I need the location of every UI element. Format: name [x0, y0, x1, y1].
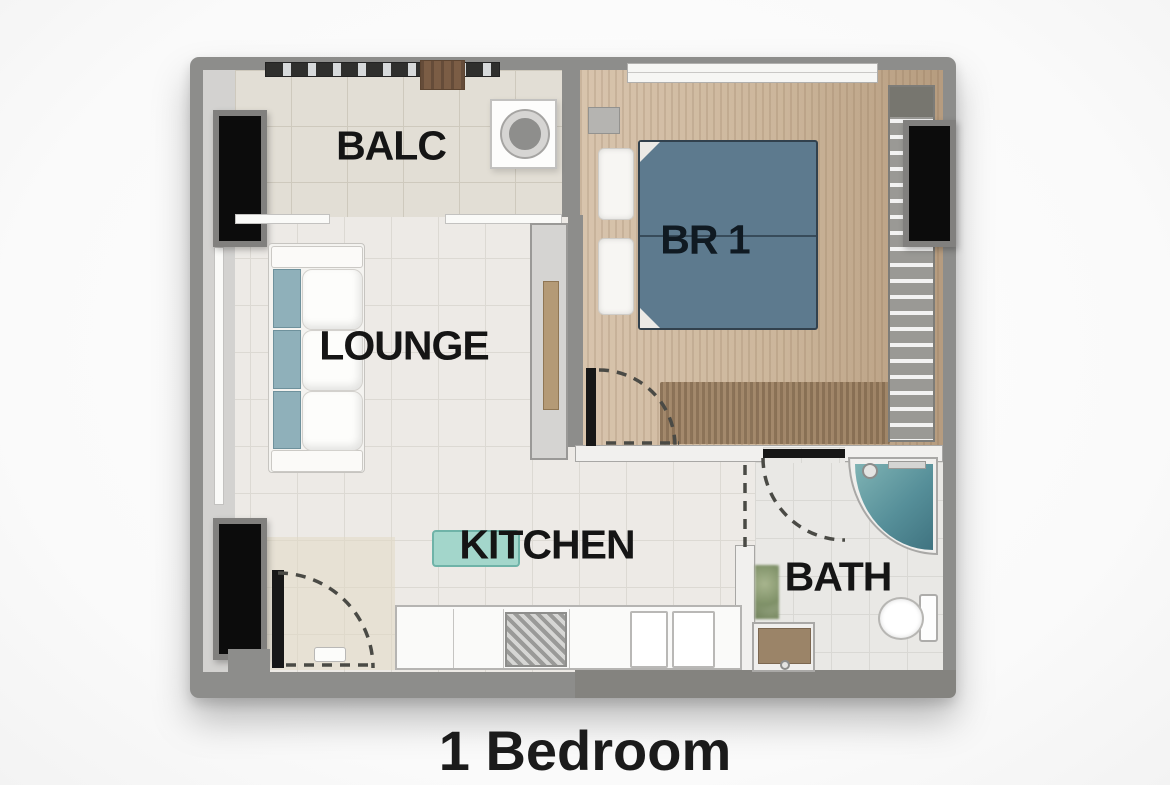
wall-balcony-bedroom — [562, 70, 580, 217]
kitchen-counter — [395, 605, 742, 670]
entrance-door-leaf — [272, 570, 284, 668]
washer-door — [502, 111, 548, 157]
counter-divider — [453, 609, 454, 668]
sofa-seat-cushion — [302, 391, 363, 451]
counter-divider — [569, 609, 570, 668]
shower-valve — [888, 461, 926, 469]
counter-divider — [503, 609, 504, 668]
sofa-back-cushion — [273, 330, 301, 389]
faucet-icon — [780, 660, 790, 670]
bedroom-window — [627, 63, 878, 83]
bed-fold-top — [640, 142, 660, 162]
tv-console-plank — [543, 281, 559, 410]
wall-lounge-bedroom — [568, 215, 583, 447]
window-panel-top-left — [213, 110, 267, 247]
toilet-icon — [878, 597, 924, 640]
room-label-lounge: LOUNGE — [319, 323, 488, 370]
plant-icon — [755, 565, 779, 619]
sofa-back-cushion — [273, 269, 301, 328]
cooktop — [630, 611, 668, 668]
floor-plan-page: { "title": "1 Bedroom", "rooms": { "balc… — [0, 0, 1170, 785]
balcony-table — [420, 60, 465, 90]
room-label-kitchen: KITCHEN — [459, 522, 634, 569]
pillow — [598, 148, 634, 220]
sofa-armrest-top — [271, 246, 363, 268]
pillow — [598, 238, 634, 315]
room-label-bedroom: BR 1 — [660, 217, 749, 264]
sofa-seat-cushion — [302, 269, 363, 330]
left-window-sill — [214, 247, 224, 505]
kitchen-sink — [505, 612, 567, 667]
plan-title: 1 Bedroom — [0, 718, 1170, 783]
sofa-armrest-bottom — [271, 450, 363, 472]
vanity-counter — [758, 628, 811, 664]
window-frame-line — [628, 72, 877, 73]
bedroom-door-leaf — [586, 368, 596, 446]
sofa-back-cushion — [273, 391, 301, 449]
entrance-switch — [314, 647, 346, 662]
room-label-bath: BATH — [785, 554, 892, 601]
washing-machine-icon — [490, 99, 557, 169]
bedroom-rug — [660, 382, 890, 444]
shower-head-icon — [862, 463, 878, 479]
oven — [672, 611, 715, 668]
balcony-sill-left — [235, 214, 330, 224]
bed-fold-bottom — [640, 308, 660, 328]
window-panel-bottom-left — [213, 518, 267, 660]
wardrobe-shelf — [890, 87, 933, 117]
nightstand — [588, 107, 620, 134]
room-label-balcony: BALC — [336, 123, 446, 170]
bath-door-leaf — [763, 449, 845, 458]
tv-console — [530, 223, 568, 460]
window-panel-right — [903, 120, 956, 247]
vanity — [752, 622, 815, 672]
floor-plan: BALC LOUNGE BR 1 KITCHEN BATH — [190, 57, 956, 698]
entrance-wall-step — [228, 649, 270, 690]
bottom-wall-dark — [575, 670, 956, 698]
